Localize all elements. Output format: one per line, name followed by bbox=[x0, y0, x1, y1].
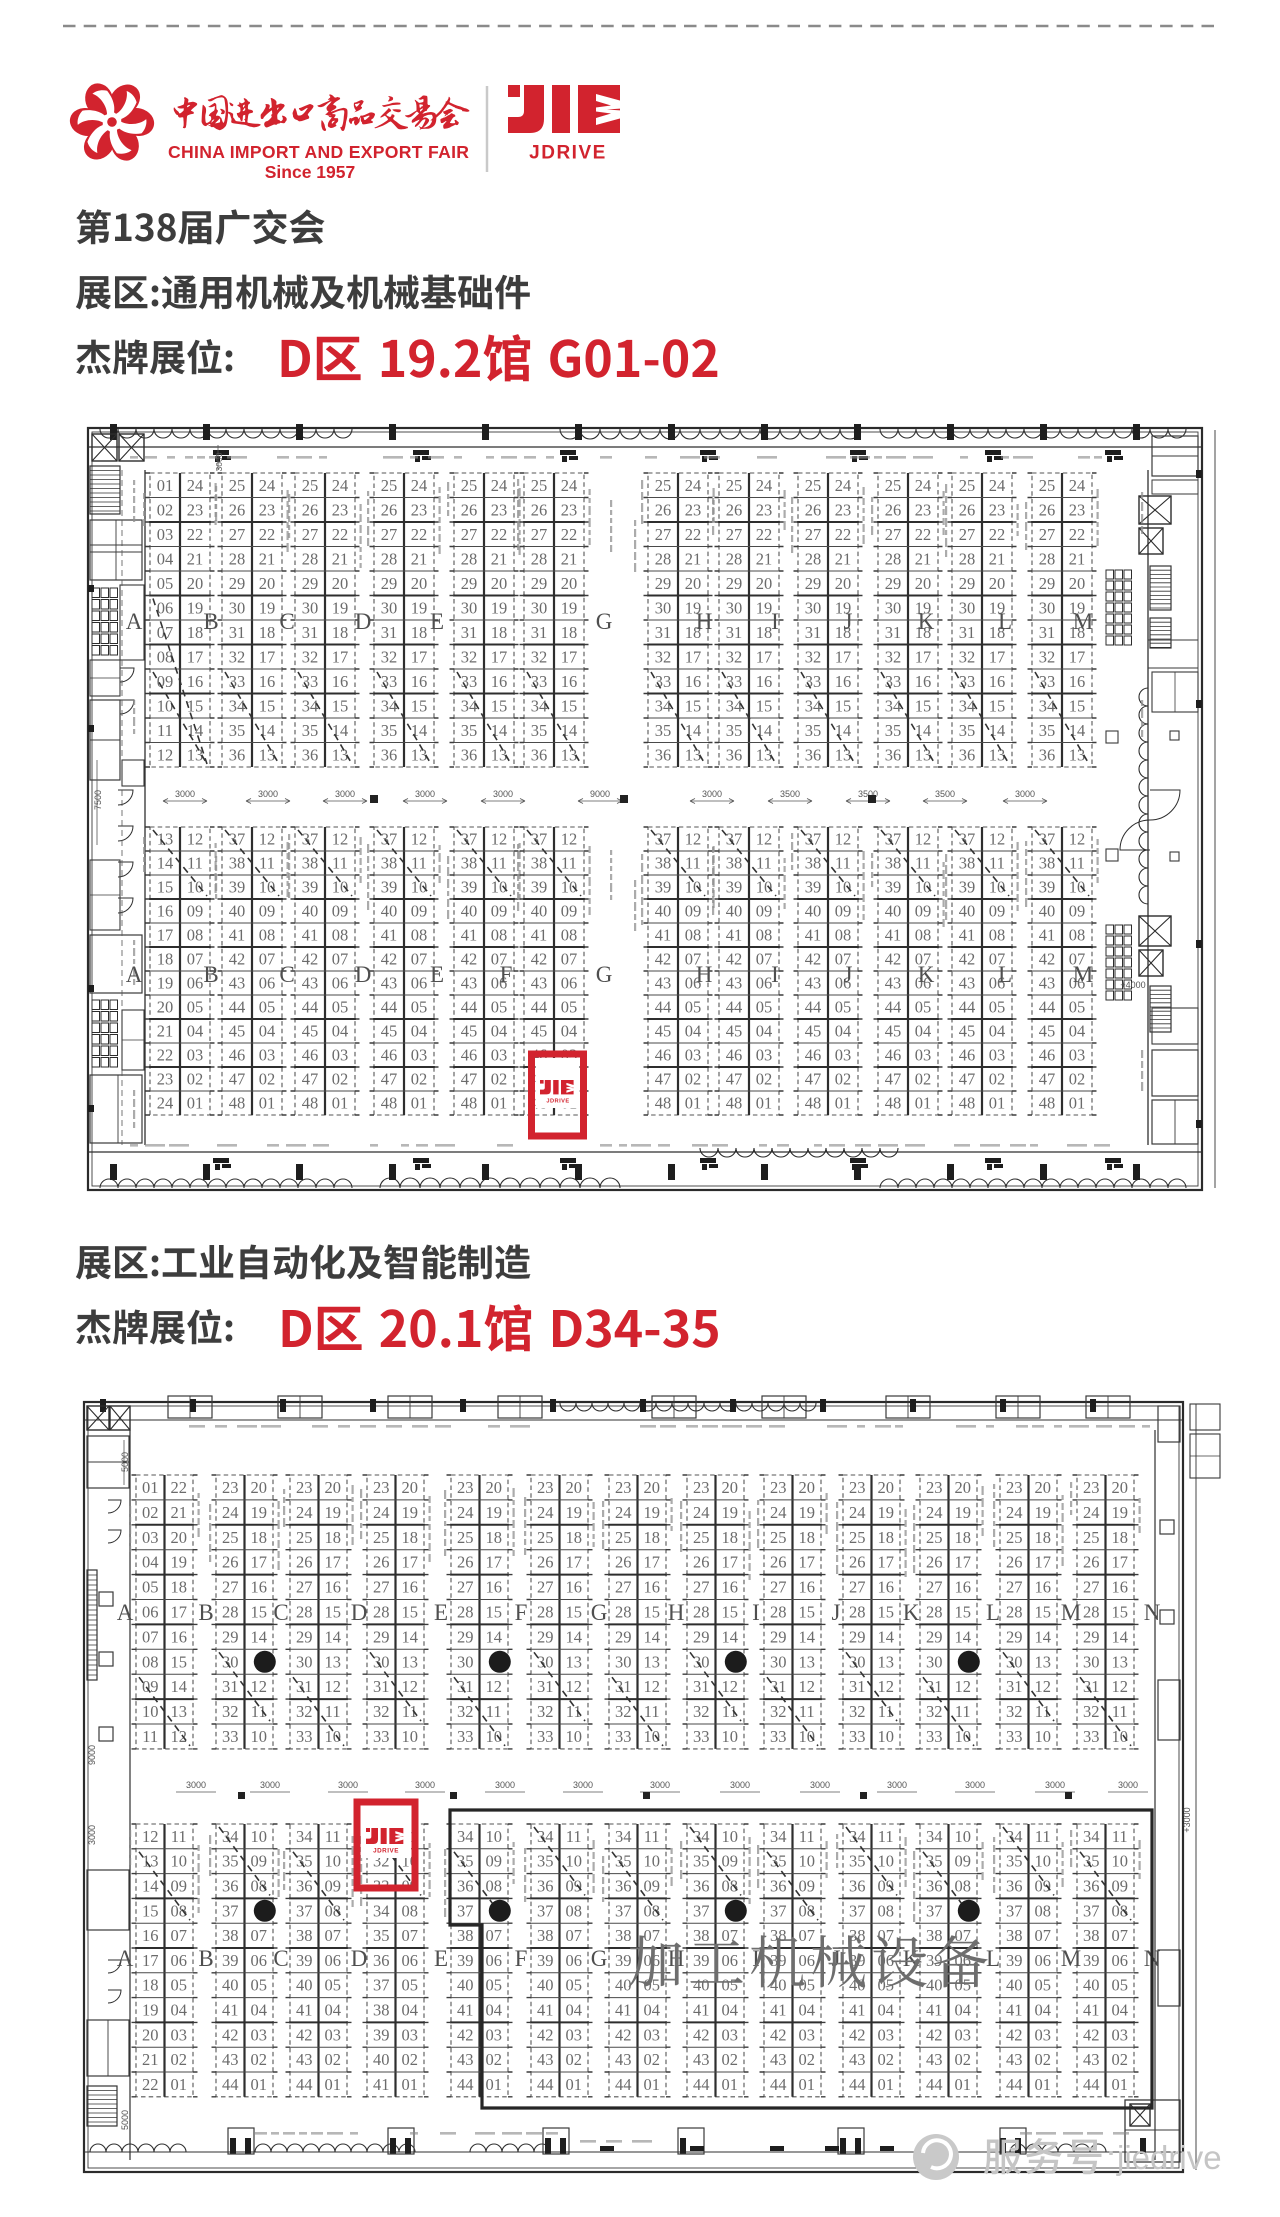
svg-text:25: 25 bbox=[926, 1528, 943, 1547]
svg-text:15: 15 bbox=[561, 696, 578, 715]
svg-text:43: 43 bbox=[381, 974, 398, 993]
svg-text:07: 07 bbox=[1112, 1926, 1129, 1945]
svg-text:12: 12 bbox=[259, 830, 276, 849]
svg-text:25: 25 bbox=[229, 476, 246, 495]
svg-text:11: 11 bbox=[332, 854, 348, 873]
svg-text:39: 39 bbox=[229, 878, 246, 897]
svg-text:19: 19 bbox=[259, 598, 276, 617]
svg-text:38: 38 bbox=[381, 854, 398, 873]
svg-text:40: 40 bbox=[537, 1976, 554, 1995]
svg-text:31: 31 bbox=[373, 1677, 390, 1696]
svg-text:12: 12 bbox=[644, 1677, 661, 1696]
svg-text:20: 20 bbox=[402, 1478, 419, 1497]
svg-text:21: 21 bbox=[157, 1022, 174, 1041]
svg-text:42: 42 bbox=[229, 950, 246, 969]
svg-text:07: 07 bbox=[561, 950, 578, 969]
svg-text:20: 20 bbox=[1112, 1478, 1129, 1497]
svg-text:09: 09 bbox=[486, 1852, 503, 1871]
svg-text:12: 12 bbox=[756, 830, 773, 849]
svg-text:20: 20 bbox=[142, 2025, 159, 2044]
svg-text:16: 16 bbox=[491, 672, 508, 691]
svg-text:28: 28 bbox=[655, 549, 672, 568]
svg-text:26: 26 bbox=[805, 500, 822, 519]
svg-text:3000: 3000 bbox=[1045, 1780, 1065, 1790]
svg-text:12: 12 bbox=[251, 1677, 268, 1696]
svg-text:36: 36 bbox=[655, 745, 672, 764]
svg-text:14: 14 bbox=[878, 1627, 895, 1646]
svg-text:31: 31 bbox=[805, 623, 822, 642]
svg-text:03: 03 bbox=[989, 1046, 1006, 1065]
svg-text:40: 40 bbox=[885, 902, 902, 921]
svg-text:03: 03 bbox=[187, 1046, 204, 1065]
svg-text:02: 02 bbox=[171, 2050, 188, 2069]
svg-text:29: 29 bbox=[849, 1627, 866, 1646]
svg-text:43: 43 bbox=[222, 2050, 239, 2069]
svg-text:03: 03 bbox=[259, 1046, 276, 1065]
svg-text:39: 39 bbox=[373, 2025, 390, 2044]
svg-text:24: 24 bbox=[926, 1503, 943, 1522]
svg-text:44: 44 bbox=[302, 998, 319, 1017]
svg-text:02: 02 bbox=[402, 2050, 419, 2069]
svg-text:45: 45 bbox=[959, 1022, 976, 1041]
svg-text:42: 42 bbox=[222, 2025, 239, 2044]
svg-text:40: 40 bbox=[959, 902, 976, 921]
svg-text:21: 21 bbox=[491, 549, 508, 568]
svg-text:46: 46 bbox=[655, 1046, 672, 1065]
svg-text:28: 28 bbox=[457, 1602, 474, 1621]
svg-text:38: 38 bbox=[1039, 854, 1056, 873]
svg-text:3000: 3000 bbox=[965, 1780, 985, 1790]
svg-text:37: 37 bbox=[959, 830, 976, 849]
svg-text:15: 15 bbox=[1035, 1602, 1052, 1621]
svg-text:29: 29 bbox=[302, 574, 319, 593]
svg-text:30: 30 bbox=[537, 1652, 554, 1671]
svg-text:30: 30 bbox=[1039, 598, 1056, 617]
svg-text:40: 40 bbox=[693, 1976, 710, 1995]
svg-text:28: 28 bbox=[1006, 1602, 1023, 1621]
svg-text:39: 39 bbox=[1039, 878, 1056, 897]
svg-text:02: 02 bbox=[756, 1070, 773, 1089]
svg-text:11: 11 bbox=[1069, 854, 1085, 873]
svg-text:26: 26 bbox=[381, 500, 398, 519]
svg-text:19: 19 bbox=[878, 1503, 895, 1522]
svg-text:05: 05 bbox=[685, 998, 702, 1017]
svg-text:39: 39 bbox=[1083, 1951, 1100, 1970]
svg-text:E: E bbox=[434, 1600, 448, 1625]
svg-text:08: 08 bbox=[259, 926, 276, 945]
svg-text:42: 42 bbox=[693, 2025, 710, 2044]
svg-text:34: 34 bbox=[726, 696, 743, 715]
svg-text:22: 22 bbox=[171, 1478, 188, 1497]
svg-text:02: 02 bbox=[157, 500, 174, 519]
svg-text:36: 36 bbox=[959, 745, 976, 764]
svg-text:21: 21 bbox=[685, 549, 702, 568]
svg-text:34: 34 bbox=[296, 1827, 313, 1846]
svg-text:05: 05 bbox=[171, 1976, 188, 1995]
svg-text:31: 31 bbox=[531, 623, 548, 642]
svg-text:29: 29 bbox=[1039, 574, 1056, 593]
svg-text:31: 31 bbox=[457, 1677, 474, 1696]
svg-text:01: 01 bbox=[566, 2075, 583, 2094]
svg-text:15: 15 bbox=[1069, 696, 1086, 715]
svg-text:27: 27 bbox=[1006, 1578, 1023, 1597]
svg-text:04: 04 bbox=[251, 2001, 268, 2020]
svg-text:05: 05 bbox=[187, 998, 204, 1017]
svg-text:44: 44 bbox=[1039, 998, 1056, 1017]
svg-text:C: C bbox=[279, 609, 294, 634]
svg-text:39: 39 bbox=[381, 878, 398, 897]
svg-text:03: 03 bbox=[685, 1046, 702, 1065]
svg-text:15: 15 bbox=[756, 696, 773, 715]
svg-text:29: 29 bbox=[926, 1627, 943, 1646]
svg-text:44: 44 bbox=[457, 2075, 474, 2094]
svg-text:02: 02 bbox=[722, 2050, 739, 2069]
svg-text:43: 43 bbox=[849, 2050, 866, 2069]
svg-text:11: 11 bbox=[171, 1827, 187, 1846]
svg-text:20: 20 bbox=[187, 574, 204, 593]
svg-text:46: 46 bbox=[959, 1046, 976, 1065]
svg-text:44: 44 bbox=[229, 998, 246, 1017]
svg-text:34: 34 bbox=[222, 1827, 239, 1846]
svg-text:27: 27 bbox=[537, 1578, 554, 1597]
svg-text:37: 37 bbox=[885, 830, 902, 849]
svg-text:33: 33 bbox=[302, 672, 319, 691]
svg-text:17: 17 bbox=[1069, 647, 1086, 666]
svg-text:3000: 3000 bbox=[214, 452, 224, 471]
svg-text:09: 09 bbox=[411, 902, 428, 921]
svg-text:09: 09 bbox=[251, 1852, 268, 1871]
svg-text:22: 22 bbox=[491, 525, 508, 544]
svg-text:33: 33 bbox=[537, 1727, 554, 1746]
svg-text:27: 27 bbox=[1083, 1578, 1100, 1597]
svg-text:36: 36 bbox=[531, 745, 548, 764]
svg-text:F: F bbox=[500, 962, 513, 987]
svg-text:27: 27 bbox=[770, 1578, 787, 1597]
svg-text:10: 10 bbox=[142, 1702, 159, 1721]
svg-text:47: 47 bbox=[461, 1070, 478, 1089]
svg-text:08: 08 bbox=[486, 1877, 503, 1896]
svg-text:15: 15 bbox=[566, 1602, 583, 1621]
svg-text:07: 07 bbox=[411, 950, 428, 969]
svg-text:12: 12 bbox=[685, 830, 702, 849]
svg-text:N: N bbox=[1144, 1600, 1161, 1625]
svg-text:H: H bbox=[668, 1600, 685, 1625]
svg-text:06: 06 bbox=[325, 1951, 342, 1970]
svg-text:29: 29 bbox=[229, 574, 246, 593]
svg-text:23: 23 bbox=[491, 500, 508, 519]
svg-text:13: 13 bbox=[799, 1652, 816, 1671]
svg-text:32: 32 bbox=[531, 647, 548, 666]
svg-text:07: 07 bbox=[566, 1926, 583, 1945]
svg-text:20: 20 bbox=[835, 574, 852, 593]
svg-text:14: 14 bbox=[799, 1627, 816, 1646]
svg-text:3000: 3000 bbox=[258, 789, 278, 799]
svg-text:31: 31 bbox=[1006, 1677, 1023, 1696]
svg-text:13: 13 bbox=[1035, 1652, 1052, 1671]
svg-text:D: D bbox=[355, 962, 372, 987]
svg-text:45: 45 bbox=[531, 1022, 548, 1041]
svg-text:14: 14 bbox=[722, 1627, 739, 1646]
svg-text:21: 21 bbox=[187, 549, 204, 568]
svg-text:25: 25 bbox=[302, 476, 319, 495]
svg-text:34: 34 bbox=[655, 696, 672, 715]
svg-text:25: 25 bbox=[1006, 1528, 1023, 1547]
svg-text:5000: 5000 bbox=[120, 2110, 130, 2130]
svg-text:38: 38 bbox=[1083, 1926, 1100, 1945]
svg-text:C: C bbox=[273, 1946, 288, 1971]
svg-text:16: 16 bbox=[566, 1578, 583, 1597]
svg-text:33: 33 bbox=[457, 1727, 474, 1746]
svg-text:41: 41 bbox=[926, 2001, 943, 2020]
svg-text:22: 22 bbox=[332, 525, 349, 544]
svg-text:33: 33 bbox=[726, 672, 743, 691]
svg-text:K: K bbox=[903, 1600, 920, 1625]
svg-text:30: 30 bbox=[302, 598, 319, 617]
svg-text:14: 14 bbox=[402, 1627, 419, 1646]
svg-text:28: 28 bbox=[302, 549, 319, 568]
svg-text:46: 46 bbox=[302, 1046, 319, 1065]
svg-text:07: 07 bbox=[157, 623, 174, 642]
svg-text:43: 43 bbox=[805, 974, 822, 993]
svg-text:04: 04 bbox=[411, 1022, 428, 1041]
svg-text:03: 03 bbox=[251, 2025, 268, 2044]
svg-text:17: 17 bbox=[251, 1553, 268, 1572]
svg-text:05: 05 bbox=[486, 1976, 503, 1995]
svg-text:16: 16 bbox=[142, 1926, 159, 1945]
svg-text:A: A bbox=[126, 609, 143, 634]
svg-text:10: 10 bbox=[566, 1727, 583, 1746]
svg-text:17: 17 bbox=[491, 647, 508, 666]
svg-text:17: 17 bbox=[685, 647, 702, 666]
svg-text:19: 19 bbox=[142, 2001, 159, 2020]
svg-text:3000: 3000 bbox=[730, 1780, 750, 1790]
svg-text:15: 15 bbox=[644, 1602, 661, 1621]
svg-text:03: 03 bbox=[332, 1046, 349, 1065]
svg-text:20: 20 bbox=[486, 1478, 503, 1497]
svg-text:01: 01 bbox=[1069, 1094, 1086, 1113]
svg-text:10: 10 bbox=[325, 1852, 342, 1871]
svg-text:03: 03 bbox=[325, 2025, 342, 2044]
svg-text:40: 40 bbox=[770, 1976, 787, 1995]
svg-text:JDRIVE: JDRIVE bbox=[373, 1848, 399, 1855]
svg-text:14: 14 bbox=[486, 1627, 503, 1646]
svg-text:27: 27 bbox=[381, 525, 398, 544]
svg-text:18: 18 bbox=[1035, 1528, 1052, 1547]
svg-text:27: 27 bbox=[373, 1578, 390, 1597]
svg-text:37: 37 bbox=[229, 830, 246, 849]
svg-text:13: 13 bbox=[142, 1852, 159, 1871]
svg-text:17: 17 bbox=[835, 647, 852, 666]
svg-text:11: 11 bbox=[142, 1727, 158, 1746]
svg-text:29: 29 bbox=[885, 574, 902, 593]
svg-text:43: 43 bbox=[885, 974, 902, 993]
svg-text:14: 14 bbox=[955, 1627, 972, 1646]
svg-text:23: 23 bbox=[770, 1478, 787, 1497]
svg-text:39: 39 bbox=[296, 1951, 313, 1970]
svg-text:17: 17 bbox=[142, 1951, 159, 1970]
svg-text:3000: 3000 bbox=[338, 1780, 358, 1790]
svg-text:33: 33 bbox=[693, 1727, 710, 1746]
svg-text:40: 40 bbox=[373, 2050, 390, 2069]
svg-text:01: 01 bbox=[915, 1094, 932, 1113]
svg-text:30: 30 bbox=[849, 1652, 866, 1671]
svg-text:48: 48 bbox=[959, 1094, 976, 1113]
svg-text:M: M bbox=[1061, 1946, 1081, 1971]
svg-text:15: 15 bbox=[486, 1602, 503, 1621]
svg-text:31: 31 bbox=[302, 623, 319, 642]
svg-text:45: 45 bbox=[302, 1022, 319, 1041]
svg-text:45: 45 bbox=[381, 1022, 398, 1041]
svg-text:16: 16 bbox=[561, 672, 578, 691]
svg-text:32: 32 bbox=[926, 1702, 943, 1721]
svg-text:03: 03 bbox=[142, 1528, 159, 1547]
svg-text:11: 11 bbox=[756, 854, 772, 873]
svg-text:08: 08 bbox=[566, 1901, 583, 1920]
svg-text:09: 09 bbox=[187, 902, 204, 921]
svg-text:36: 36 bbox=[373, 1951, 390, 1970]
svg-text:JDRIVE: JDRIVE bbox=[529, 143, 607, 164]
svg-text:24: 24 bbox=[835, 476, 852, 495]
svg-text:32: 32 bbox=[805, 647, 822, 666]
svg-text:14: 14 bbox=[566, 1627, 583, 1646]
svg-text:35: 35 bbox=[302, 721, 319, 740]
svg-text:21: 21 bbox=[989, 549, 1006, 568]
svg-text:28: 28 bbox=[805, 549, 822, 568]
svg-text:24: 24 bbox=[296, 1503, 313, 1522]
svg-text:04: 04 bbox=[1035, 2001, 1052, 2020]
svg-text:33: 33 bbox=[805, 672, 822, 691]
svg-text:18: 18 bbox=[259, 623, 276, 642]
svg-text:26: 26 bbox=[959, 500, 976, 519]
svg-text:3000: 3000 bbox=[573, 1780, 593, 1790]
svg-text:30: 30 bbox=[1083, 1652, 1100, 1671]
svg-text:39: 39 bbox=[726, 878, 743, 897]
svg-text:34: 34 bbox=[849, 1827, 866, 1846]
svg-text:05: 05 bbox=[835, 998, 852, 1017]
svg-text:44: 44 bbox=[1006, 2075, 1023, 2094]
svg-text:12: 12 bbox=[835, 830, 852, 849]
svg-text:43: 43 bbox=[959, 974, 976, 993]
svg-text:32: 32 bbox=[1039, 647, 1056, 666]
svg-text:35: 35 bbox=[461, 721, 478, 740]
svg-text:08: 08 bbox=[685, 926, 702, 945]
svg-text:24: 24 bbox=[615, 1503, 632, 1522]
svg-text:3000: 3000 bbox=[415, 789, 435, 799]
svg-text:35: 35 bbox=[373, 1926, 390, 1945]
svg-text:04: 04 bbox=[325, 2001, 342, 2020]
svg-text:13: 13 bbox=[491, 745, 508, 764]
svg-text:36: 36 bbox=[926, 1877, 943, 1896]
svg-text:39: 39 bbox=[959, 878, 976, 897]
svg-text:02: 02 bbox=[955, 2050, 972, 2069]
svg-text:10: 10 bbox=[251, 1827, 268, 1846]
svg-text:31: 31 bbox=[885, 623, 902, 642]
svg-text:11: 11 bbox=[835, 854, 851, 873]
svg-text:06: 06 bbox=[756, 974, 773, 993]
svg-text:35: 35 bbox=[1083, 1852, 1100, 1871]
svg-text:E: E bbox=[430, 962, 444, 987]
svg-text:16: 16 bbox=[332, 672, 349, 691]
svg-text:09: 09 bbox=[644, 1877, 661, 1896]
svg-text:17: 17 bbox=[566, 1553, 583, 1572]
svg-text:13: 13 bbox=[1112, 1652, 1129, 1671]
svg-text:23: 23 bbox=[332, 500, 349, 519]
svg-text:37: 37 bbox=[222, 1901, 239, 1920]
svg-text:31: 31 bbox=[1039, 623, 1056, 642]
svg-text:45: 45 bbox=[885, 1022, 902, 1041]
svg-text:04: 04 bbox=[1112, 2001, 1129, 2020]
svg-text:48: 48 bbox=[655, 1094, 672, 1113]
svg-text:36: 36 bbox=[302, 745, 319, 764]
svg-text:06: 06 bbox=[157, 598, 174, 617]
svg-text:07: 07 bbox=[402, 1926, 419, 1945]
svg-text:M: M bbox=[1061, 1600, 1081, 1625]
svg-text:15: 15 bbox=[1112, 1602, 1129, 1621]
svg-text:41: 41 bbox=[885, 926, 902, 945]
svg-text:27: 27 bbox=[229, 525, 246, 544]
svg-text:17: 17 bbox=[989, 647, 1006, 666]
svg-text:16: 16 bbox=[171, 1627, 188, 1646]
svg-text:07: 07 bbox=[799, 1926, 816, 1945]
svg-text:04: 04 bbox=[142, 1553, 159, 1572]
svg-text:44: 44 bbox=[926, 2075, 943, 2094]
svg-text:28: 28 bbox=[531, 549, 548, 568]
svg-text:09: 09 bbox=[685, 902, 702, 921]
svg-text:12: 12 bbox=[955, 1677, 972, 1696]
svg-text:12: 12 bbox=[491, 830, 508, 849]
svg-text:32: 32 bbox=[615, 1702, 632, 1721]
svg-text:03: 03 bbox=[835, 1046, 852, 1065]
svg-text:38: 38 bbox=[373, 2001, 390, 2020]
svg-text:07: 07 bbox=[251, 1926, 268, 1945]
svg-text:15: 15 bbox=[402, 1602, 419, 1621]
svg-text:35: 35 bbox=[849, 1852, 866, 1871]
svg-text:14: 14 bbox=[332, 721, 349, 740]
svg-text:18: 18 bbox=[171, 1578, 188, 1597]
svg-text:03: 03 bbox=[566, 2025, 583, 2044]
svg-text:09: 09 bbox=[325, 1877, 342, 1896]
svg-text:08: 08 bbox=[491, 926, 508, 945]
svg-text:26: 26 bbox=[296, 1553, 313, 1572]
svg-text:18: 18 bbox=[411, 623, 428, 642]
svg-text:13: 13 bbox=[332, 745, 349, 764]
svg-text:28: 28 bbox=[1083, 1602, 1100, 1621]
svg-text:08: 08 bbox=[561, 926, 578, 945]
svg-text:24: 24 bbox=[187, 476, 204, 495]
svg-text:48: 48 bbox=[229, 1094, 246, 1113]
svg-text:16: 16 bbox=[685, 672, 702, 691]
svg-text:21: 21 bbox=[171, 1503, 188, 1522]
svg-text:19: 19 bbox=[1035, 1503, 1052, 1522]
svg-text:28: 28 bbox=[461, 549, 478, 568]
svg-text:13: 13 bbox=[915, 745, 932, 764]
svg-text:19: 19 bbox=[325, 1503, 342, 1522]
svg-text:26: 26 bbox=[693, 1553, 710, 1572]
svg-text:27: 27 bbox=[885, 525, 902, 544]
svg-text:17: 17 bbox=[171, 1602, 188, 1621]
svg-text:12: 12 bbox=[486, 1677, 503, 1696]
svg-text:23: 23 bbox=[926, 1478, 943, 1497]
svg-text:47: 47 bbox=[229, 1070, 246, 1089]
svg-text:39: 39 bbox=[1006, 1951, 1023, 1970]
svg-text:14: 14 bbox=[251, 1627, 268, 1646]
svg-text:22: 22 bbox=[915, 525, 932, 544]
svg-text:16: 16 bbox=[722, 1578, 739, 1597]
svg-text:15: 15 bbox=[157, 878, 174, 897]
svg-text:44: 44 bbox=[461, 998, 478, 1017]
svg-text:C: C bbox=[273, 1600, 288, 1625]
svg-text:19: 19 bbox=[756, 598, 773, 617]
